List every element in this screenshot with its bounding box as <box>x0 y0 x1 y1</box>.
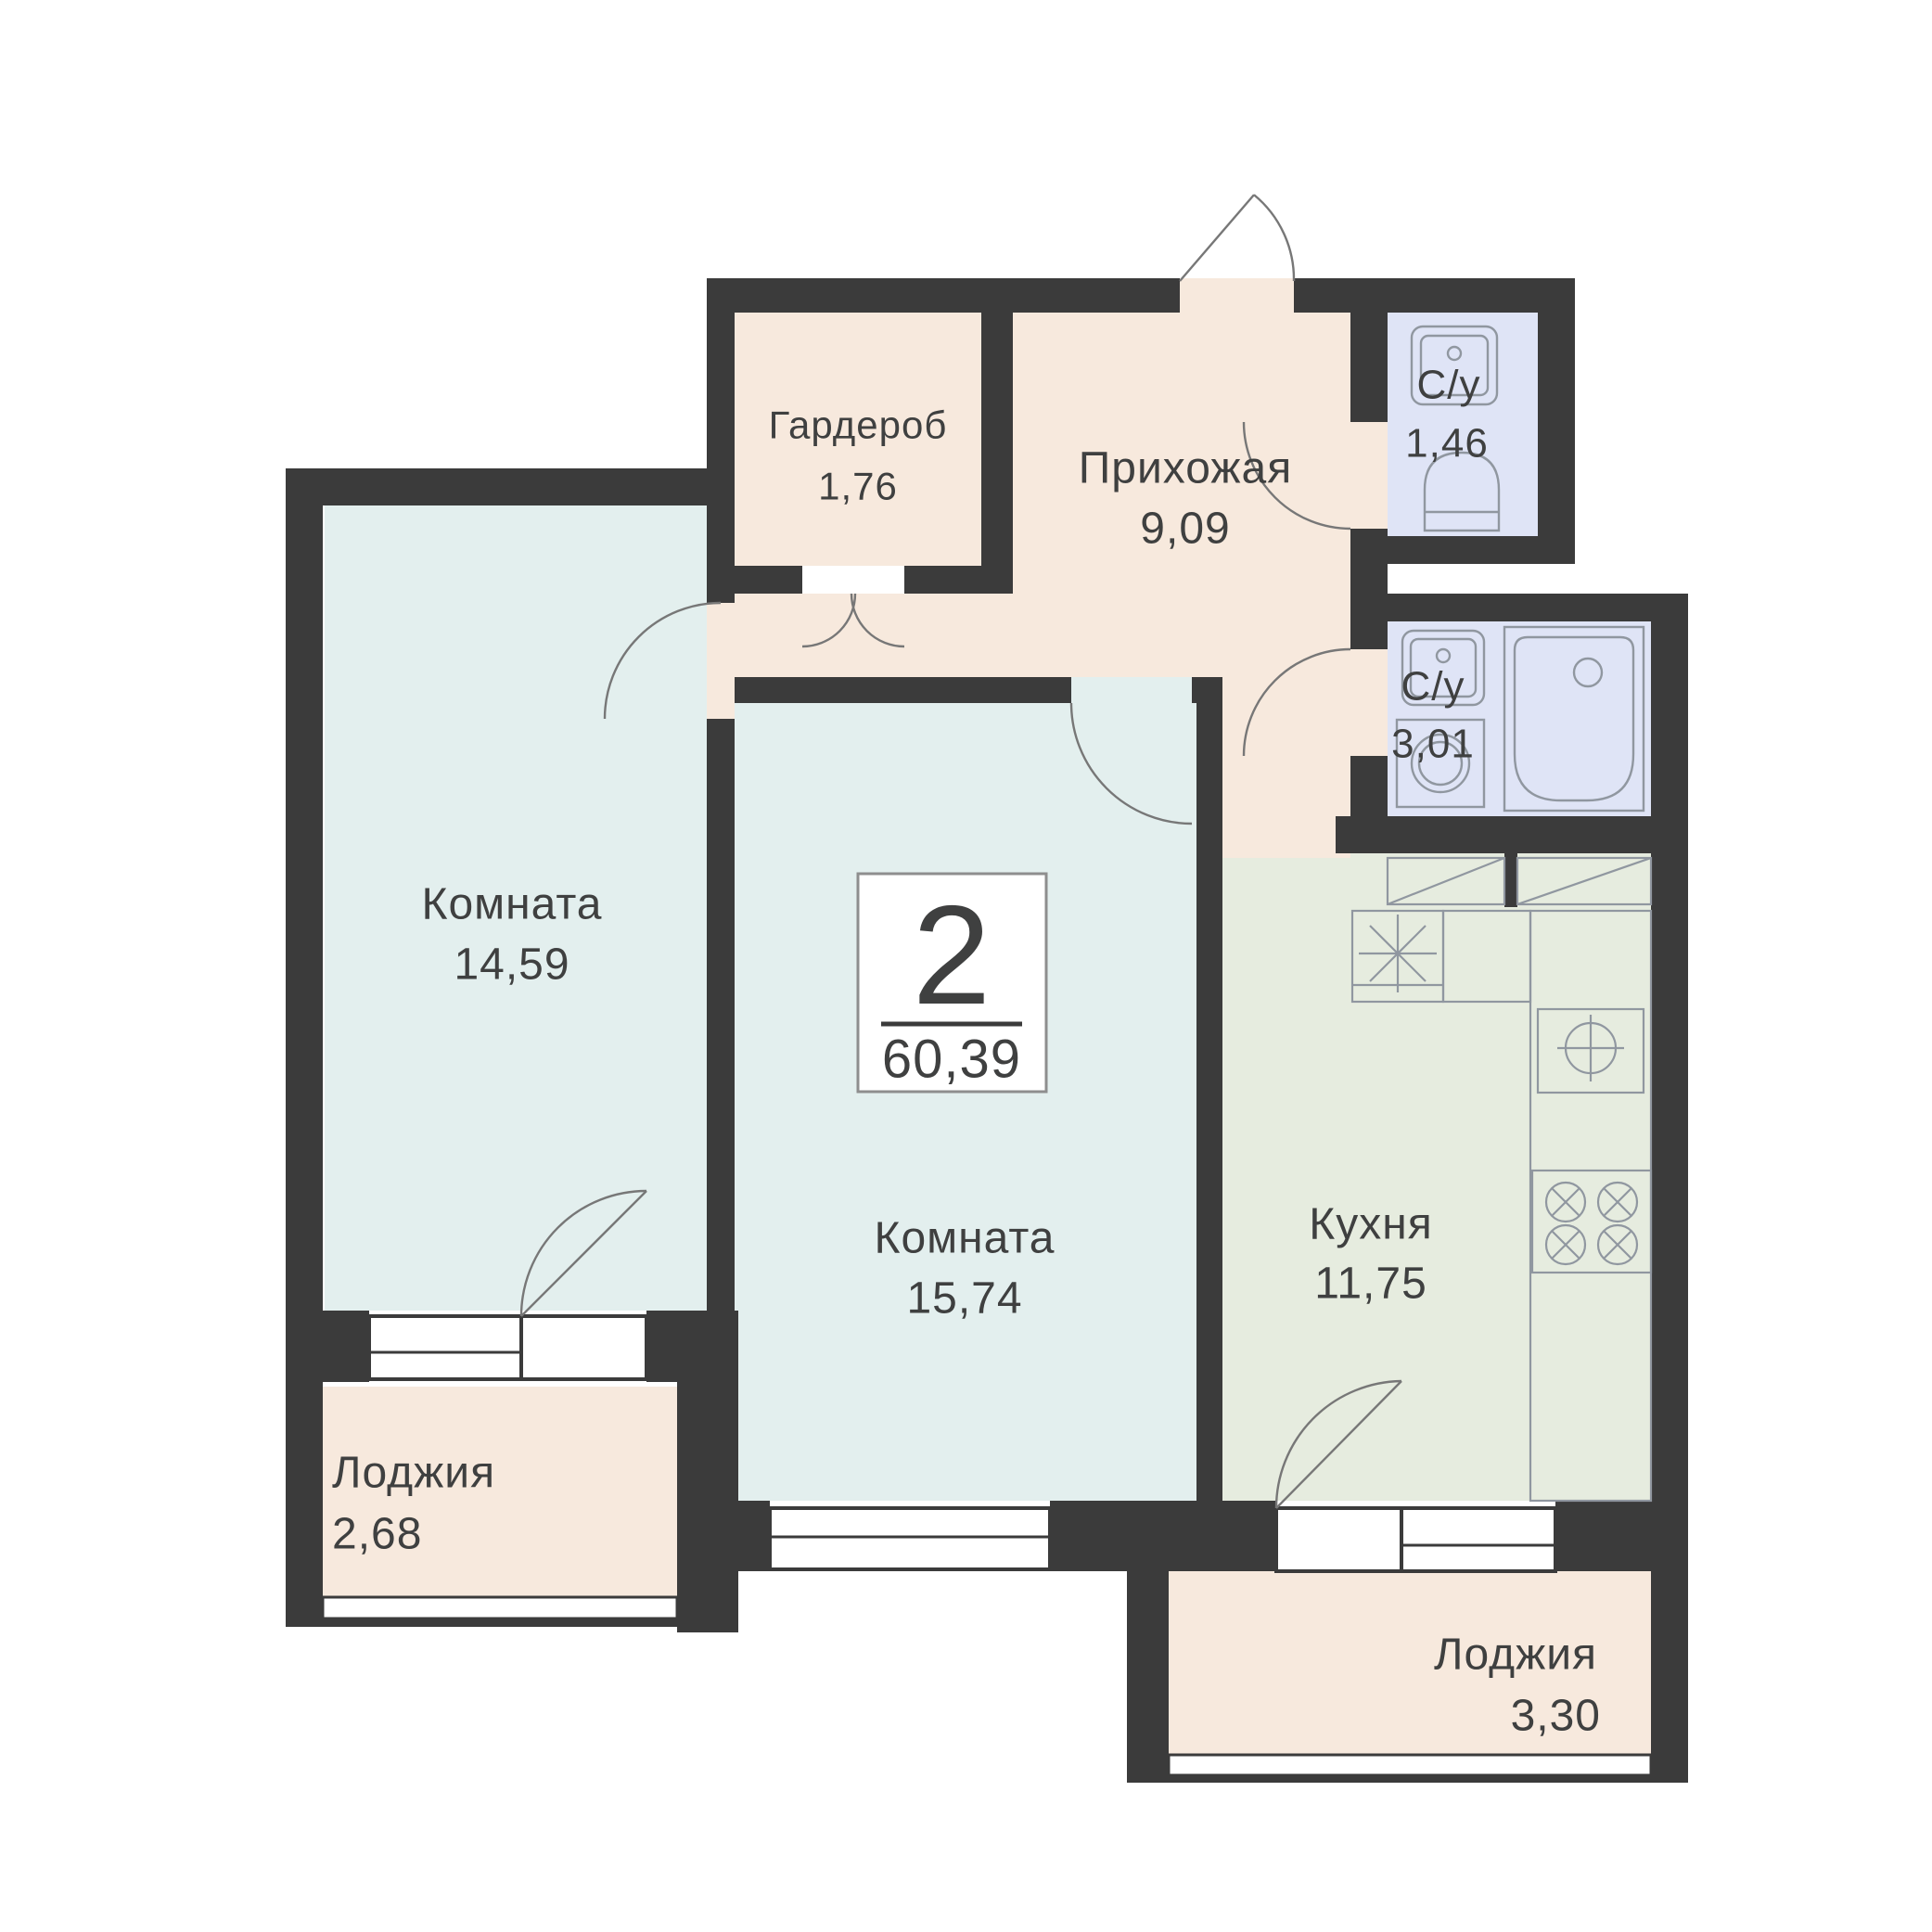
room-area-kitchen <box>1222 853 1651 1501</box>
room-label-loggia-1: Лоджия <box>332 1449 495 1498</box>
loggia-2-glazing <box>1169 1755 1651 1775</box>
wall <box>735 677 1071 703</box>
room-area-hallway-lower <box>707 594 1196 677</box>
doorway-living-room-2 <box>1071 677 1192 703</box>
wall <box>286 468 323 1627</box>
wall <box>904 566 1013 594</box>
wall <box>1538 278 1575 564</box>
window-living-room-1 <box>369 1316 521 1379</box>
room-label-hallway: Прихожая <box>1079 444 1292 493</box>
wall <box>286 468 735 505</box>
room-label-bathroom-small: С/у <box>1417 363 1481 408</box>
wall <box>1127 1571 1169 1783</box>
room-label-loggia-2: Лоджия <box>1434 1631 1597 1680</box>
room-label-kitchen: Кухня <box>1309 1200 1432 1249</box>
room-area-value: 11,75 <box>1314 1260 1427 1309</box>
badge-rooms-count: 2 <box>913 876 992 1034</box>
floorplan: Гардероб 1,76 Прихожая 9,09 С/у 1,46 С/у… <box>0 0 1932 1932</box>
room-area-value: 15,74 <box>906 1274 1022 1324</box>
room-area-value: 1,76 <box>818 465 898 508</box>
room-area-living-room-2 <box>735 703 1196 1501</box>
wall <box>646 1311 738 1382</box>
room-area-hallway-kitchen-entry <box>1222 677 1350 858</box>
room-area-value: 1,46 <box>1405 421 1489 467</box>
doorway-entrance <box>1180 278 1294 313</box>
apartment-badge: 2 60,39 <box>858 874 1046 1092</box>
entrance-door-arc <box>1254 195 1294 281</box>
wall <box>707 719 735 1311</box>
doorway-bathroom-large <box>1350 649 1388 756</box>
wall <box>1050 1501 1276 1571</box>
entrance-door-leaf <box>1180 195 1254 281</box>
wall <box>1336 816 1688 853</box>
wall <box>981 313 1013 594</box>
wall <box>1350 594 1688 621</box>
wall <box>1294 278 1575 313</box>
window-living-room-2 <box>770 1508 1050 1569</box>
room-area-value: 2,68 <box>332 1510 422 1559</box>
fridge-icon <box>1359 915 1437 992</box>
wall <box>707 278 1180 313</box>
doorway-bathroom-small <box>1350 422 1388 529</box>
wall <box>707 278 735 594</box>
wall <box>707 594 735 603</box>
room-area-value: 9,09 <box>1140 505 1230 554</box>
badge-total-area: 60,39 <box>882 1030 1021 1090</box>
wall <box>1555 1501 1688 1571</box>
wall <box>1350 313 1388 422</box>
wall <box>1504 853 1517 907</box>
wall <box>286 1311 369 1382</box>
balcony-door-kitchen <box>1276 1508 1401 1571</box>
kitchen-cabinets <box>1388 858 1651 904</box>
room-area-value: 14,59 <box>454 940 569 990</box>
wall <box>1196 677 1222 1571</box>
balcony-door-living-room-1 <box>521 1316 646 1379</box>
room-label-wardrobe: Гардероб <box>769 403 948 447</box>
wall <box>707 566 802 594</box>
room-label-living-room-1: Комната <box>422 880 603 929</box>
room-label-bathroom-large: С/у <box>1401 664 1465 710</box>
loggia-1-glazing <box>323 1597 677 1619</box>
room-area-value: 3,30 <box>1511 1692 1601 1741</box>
window-kitchen <box>1401 1508 1555 1571</box>
room-area-value: 3,01 <box>1391 722 1475 767</box>
doorway-living-room-1 <box>707 594 735 719</box>
wall <box>1651 594 1688 1783</box>
room-label-living-room-2: Комната <box>875 1214 1056 1263</box>
wall <box>707 1501 770 1571</box>
